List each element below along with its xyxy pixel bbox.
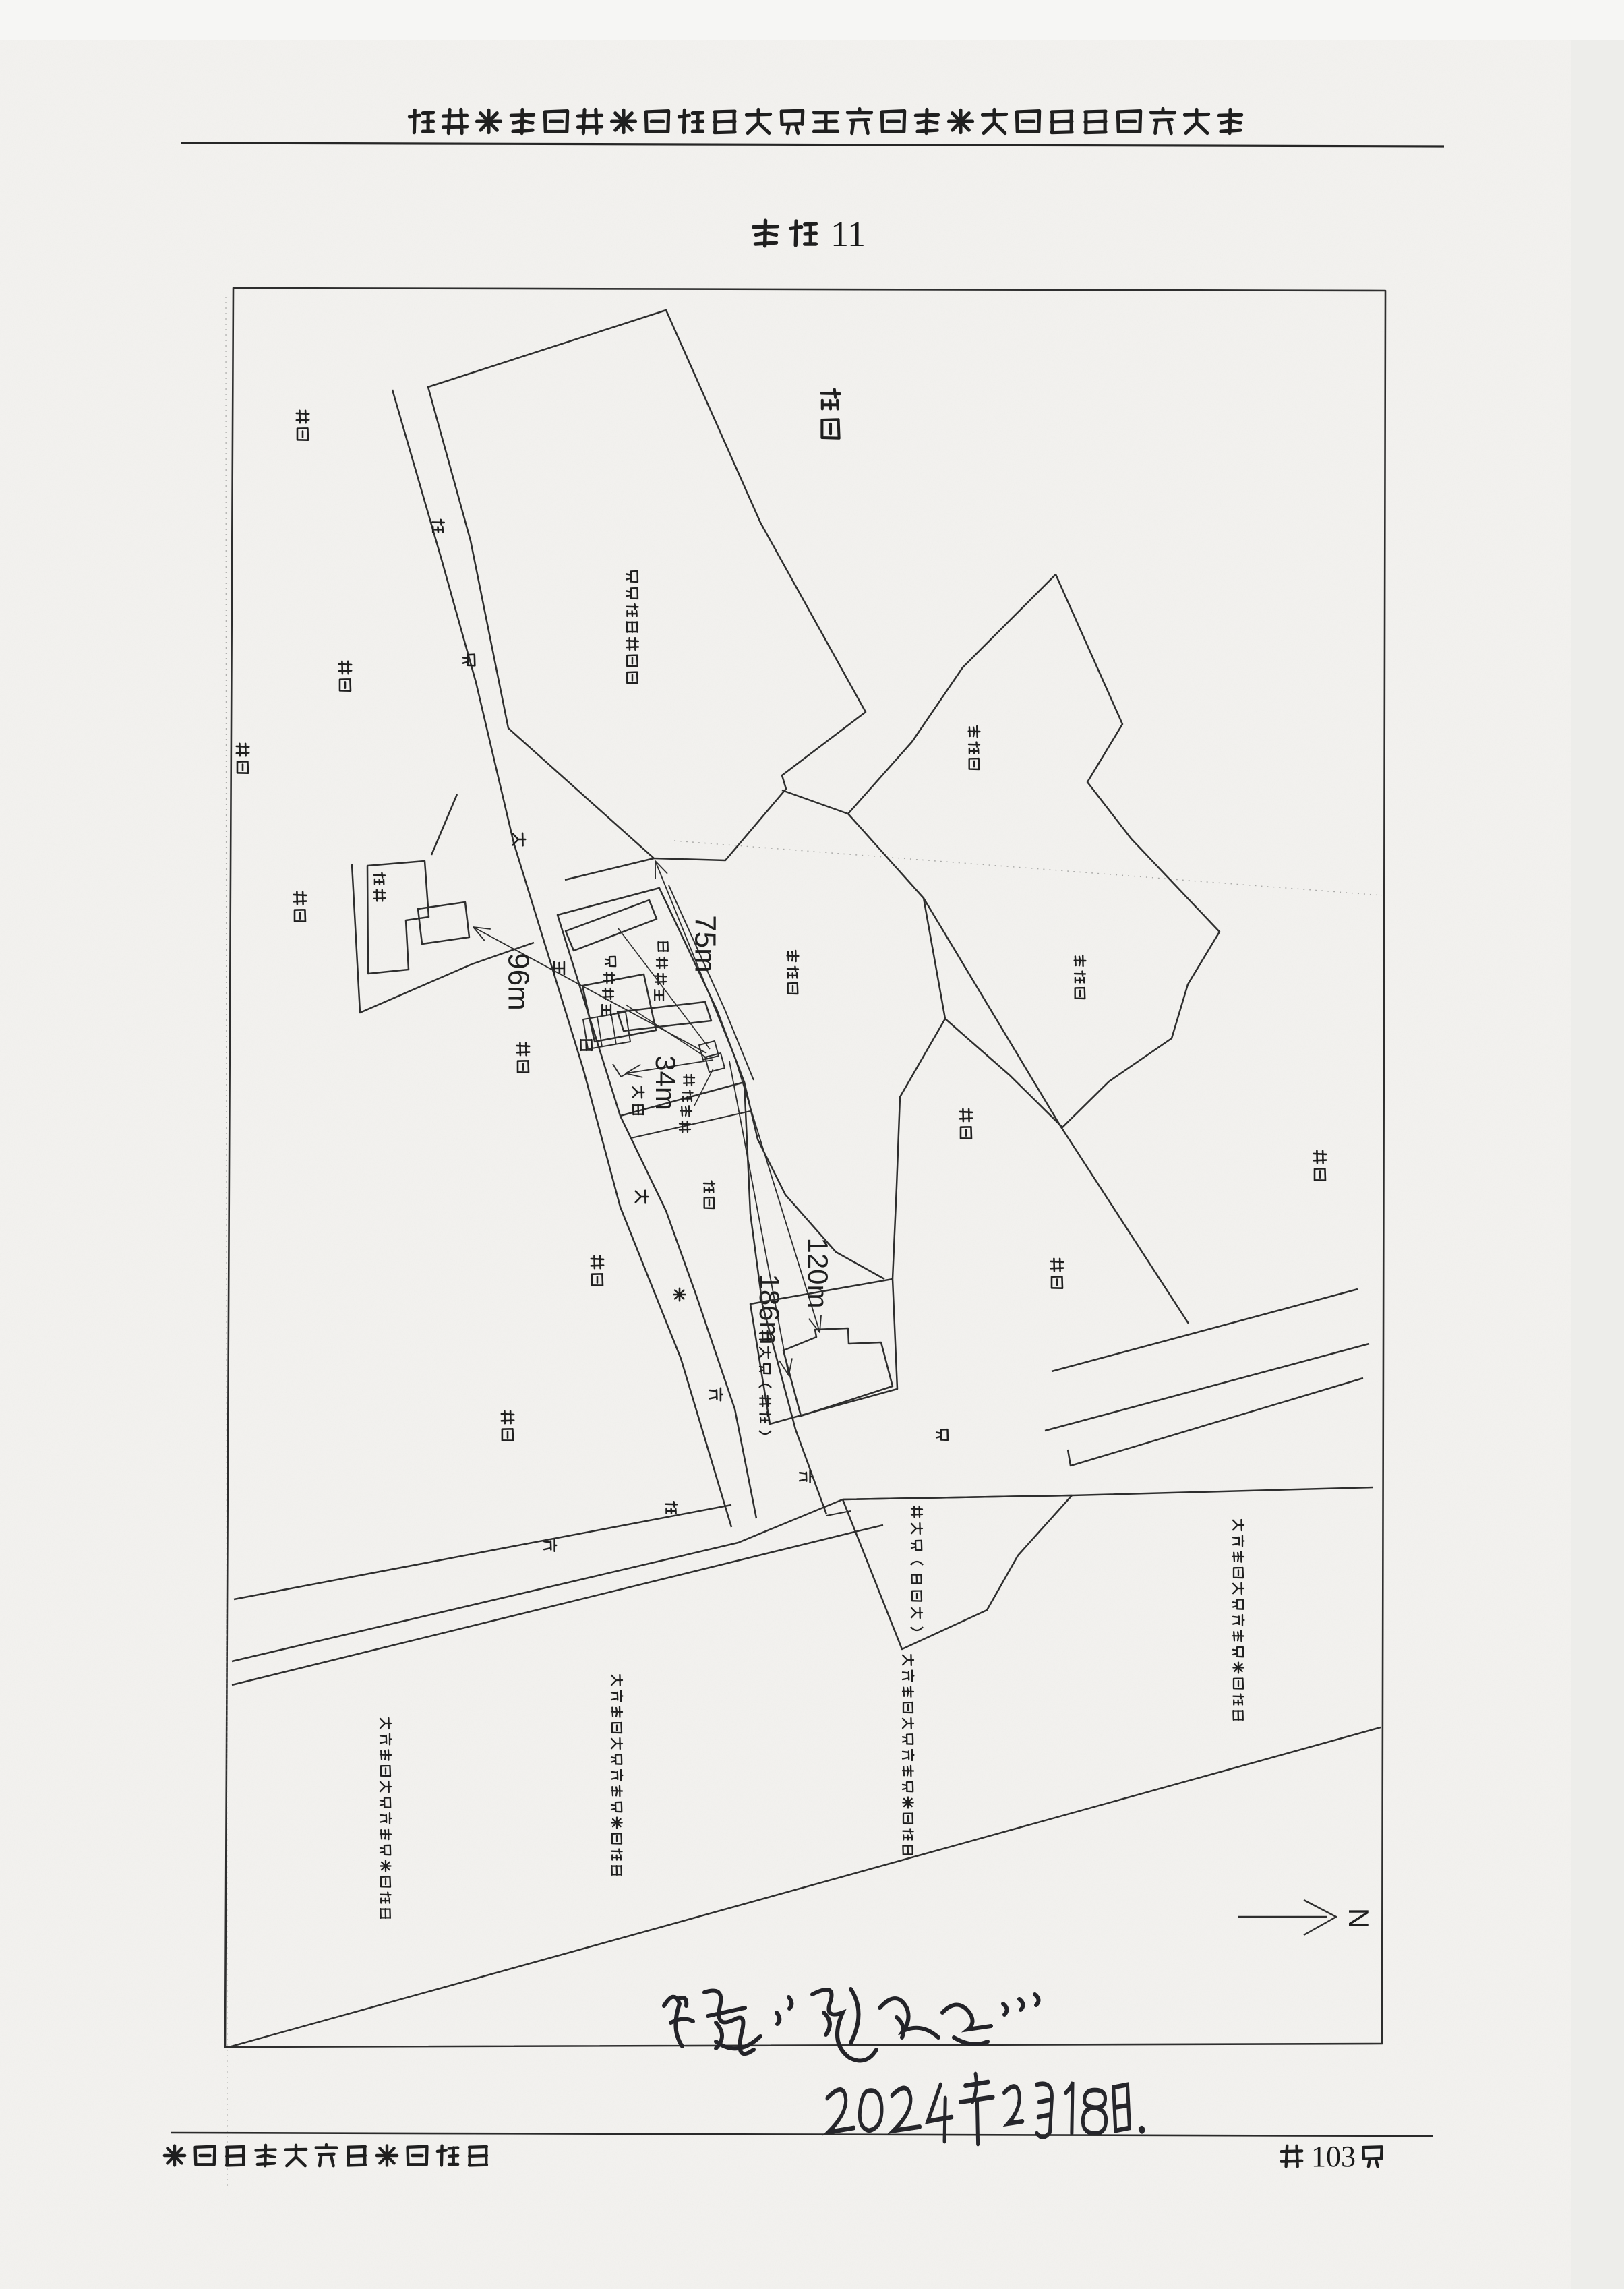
svg-text:34m: 34m [650, 1055, 682, 1110]
svg-text:120m: 120m [802, 1237, 834, 1308]
svg-text:N: N [1343, 1908, 1375, 1928]
svg-text:103: 103 [1311, 2140, 1356, 2173]
svg-text:96m: 96m [502, 953, 535, 1011]
svg-text:11: 11 [831, 214, 866, 254]
svg-text:75m: 75m [688, 915, 721, 973]
